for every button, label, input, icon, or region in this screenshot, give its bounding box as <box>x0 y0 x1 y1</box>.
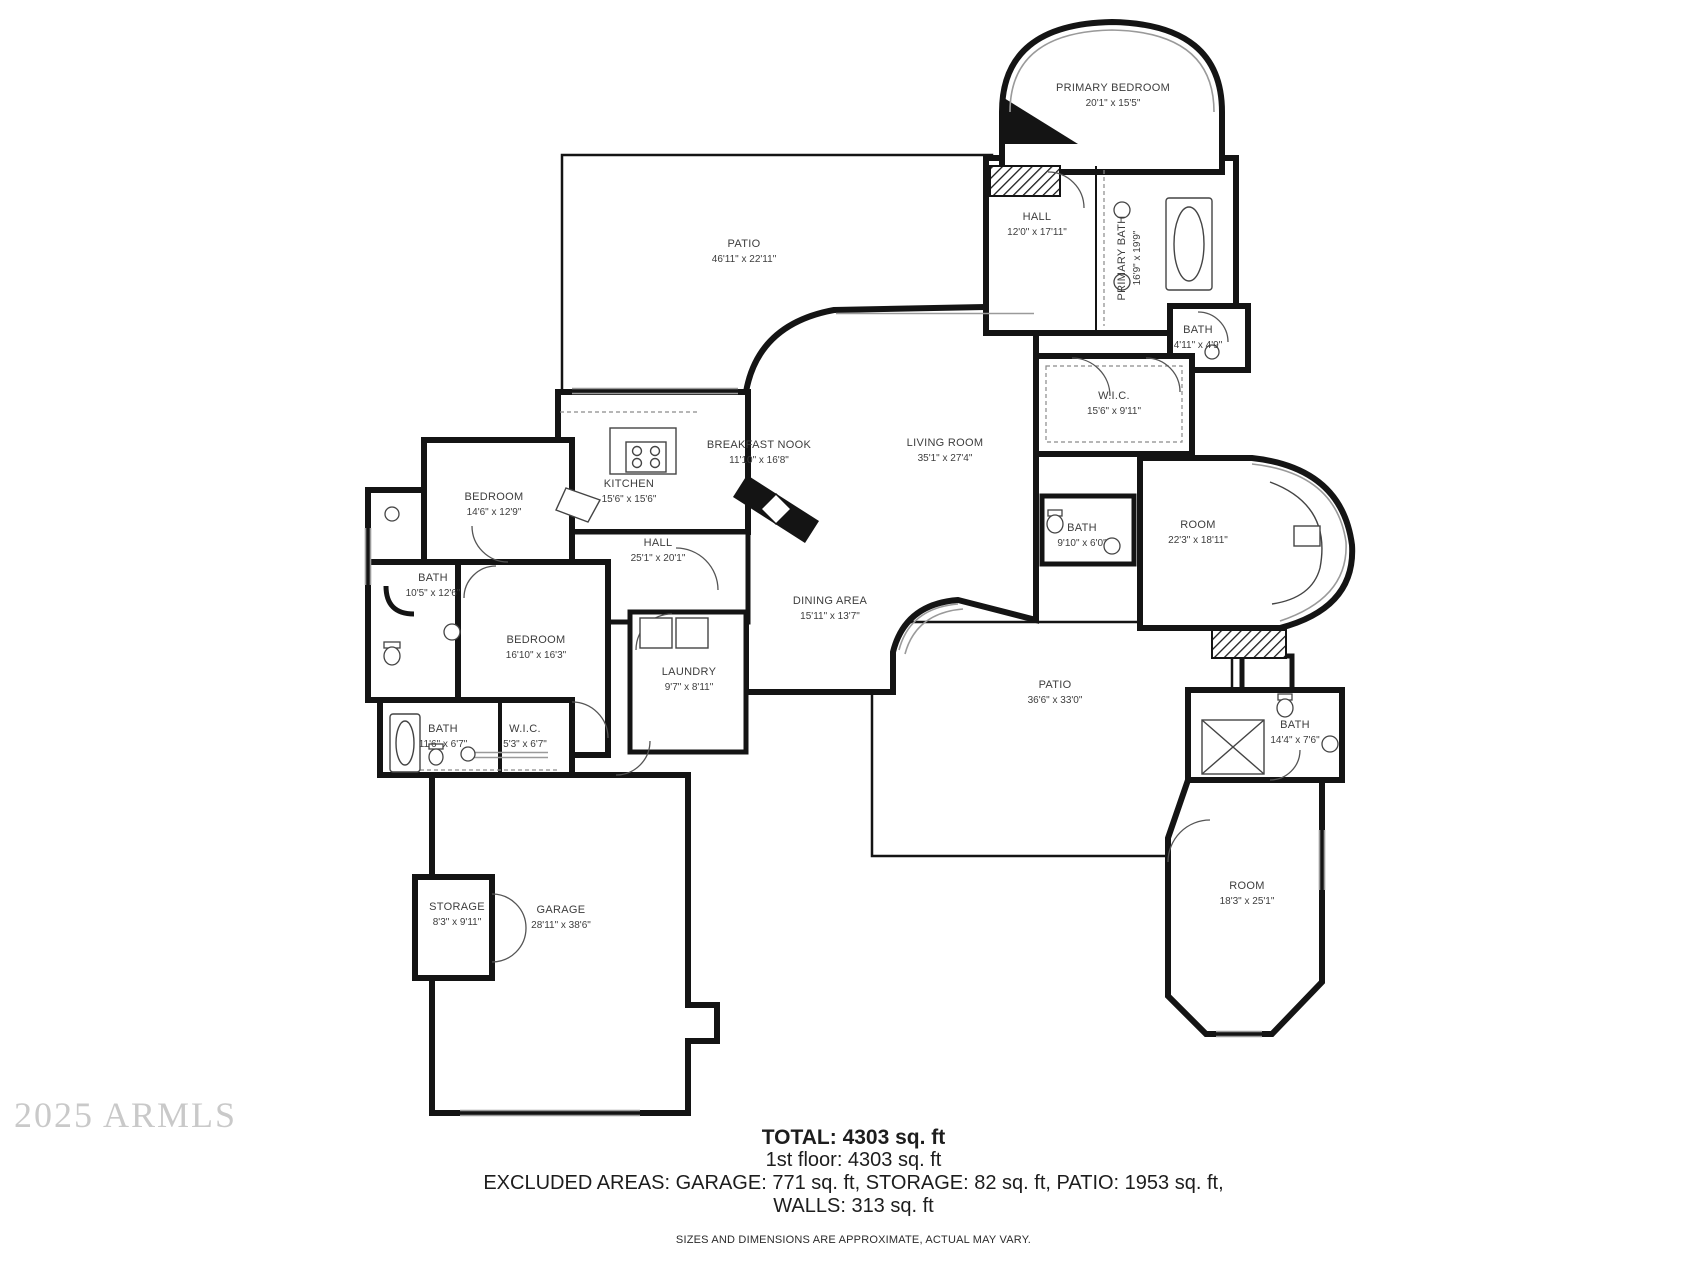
walls-area-text: WALLS: 313 sq. ft <box>0 1195 1707 1218</box>
disclaimer-text: SIZES AND DIMENSIONS ARE APPROXIMATE, AC… <box>0 1234 1707 1246</box>
first-floor-area-text: 1st floor: 4303 sq. ft <box>0 1149 1707 1172</box>
total-area-text: TOTAL: 4303 sq. ft <box>0 1126 1707 1149</box>
excluded-areas-text: EXCLUDED AREAS: GARAGE: 771 sq. ft, STOR… <box>0 1172 1707 1195</box>
armls-watermark: 2025 ARMLS <box>14 1094 237 1136</box>
floor-plan-page: PRIMARY BEDROOM20'1" x 15'5" HALL12'0" x… <box>0 0 1707 1280</box>
area-summary: TOTAL: 4303 sq. ft 1st floor: 4303 sq. f… <box>0 1126 1707 1246</box>
wall-volumes <box>368 22 1352 1113</box>
kitchen-island-icon <box>610 428 676 474</box>
shower-icon <box>1202 720 1264 774</box>
floor-plan-drawing <box>0 0 1707 1280</box>
